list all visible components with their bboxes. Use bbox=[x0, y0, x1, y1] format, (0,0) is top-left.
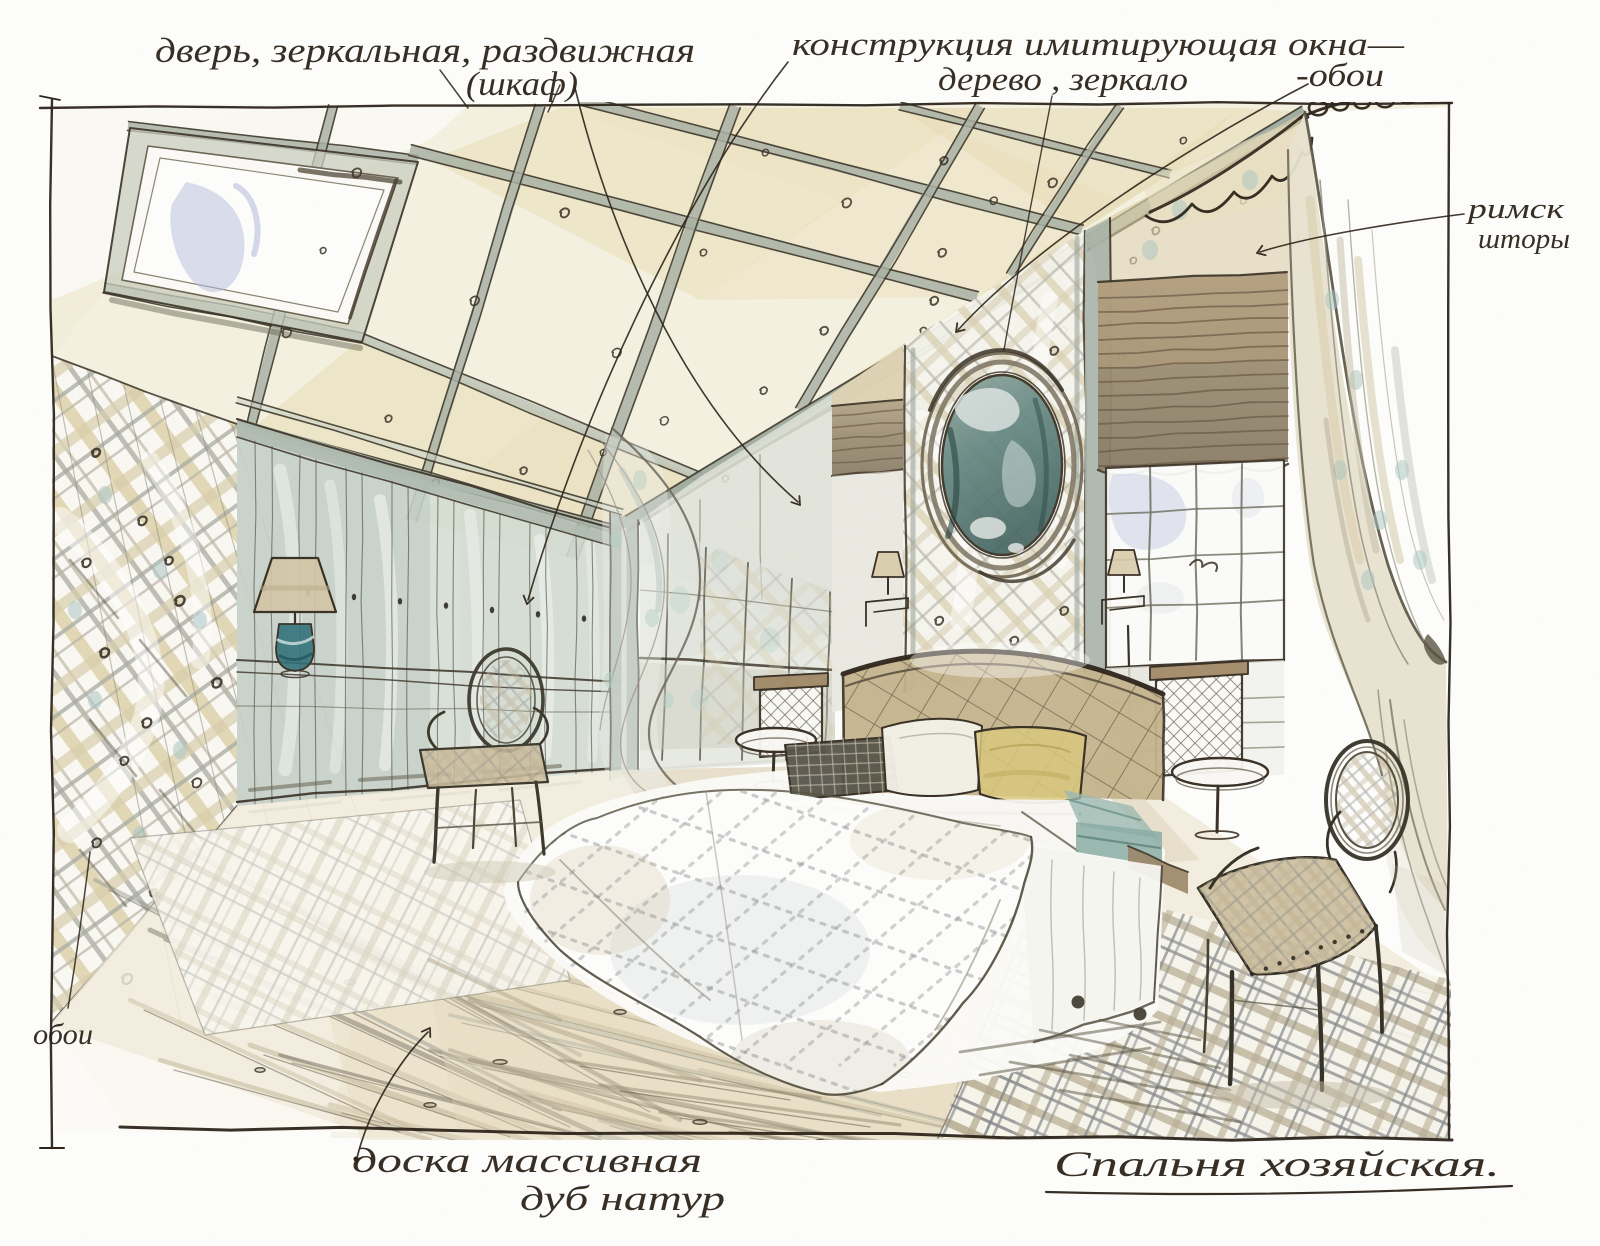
svg-text:-обои: -обои bbox=[1296, 58, 1384, 94]
svg-text:доска массивная: доска массивная bbox=[352, 1141, 702, 1180]
svg-text:дерево , зеркало: дерево , зеркало bbox=[938, 62, 1188, 98]
svg-text:обои: обои bbox=[33, 1018, 93, 1051]
svg-text:Спальня хозяйская.: Спальня хозяйская. bbox=[1054, 1144, 1500, 1184]
svg-text:дверь, зеркальная, раздвижная: дверь, зеркальная, раздвижная bbox=[155, 31, 695, 70]
svg-text:дуб натур: дуб натур bbox=[520, 1179, 725, 1218]
svg-text:шторы: шторы bbox=[1478, 223, 1570, 255]
svg-text:римск: римск bbox=[1465, 193, 1564, 225]
svg-text:(шкаф): (шкаф) bbox=[466, 66, 578, 103]
